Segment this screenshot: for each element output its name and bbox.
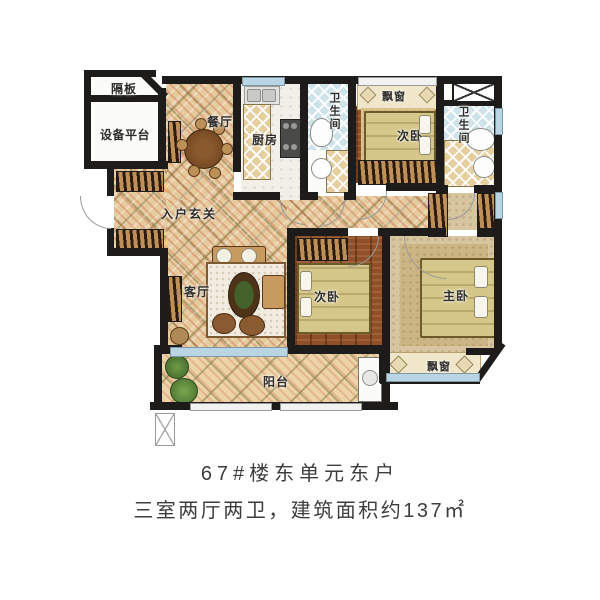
balcony-window-2 <box>280 403 362 411</box>
wall <box>107 168 114 196</box>
living-coffee-table <box>228 272 260 318</box>
label-living: 客厅 <box>184 283 210 300</box>
dining-chair <box>221 143 233 155</box>
dining-chair <box>188 165 200 177</box>
bath2-basin <box>473 156 495 178</box>
wall-bed1-bottom <box>386 183 440 191</box>
wall-bed2-bottom <box>287 345 390 354</box>
wall <box>158 88 166 168</box>
label-partition: 隔板 <box>111 80 137 97</box>
kitchen-sink-bowl <box>247 89 261 102</box>
washer-door <box>362 370 378 386</box>
balcony-slider-window <box>170 347 288 357</box>
label-bath2: 卫生间 <box>455 106 471 145</box>
label-master: 主卧 <box>443 287 469 304</box>
master-pillow <box>474 296 488 318</box>
entry-cabinet-bottom <box>116 229 164 250</box>
label-balcony: 阳台 <box>263 373 289 390</box>
living-plant-pot <box>170 327 189 345</box>
living-side-cabinet <box>168 276 182 322</box>
living-armchair <box>262 275 285 309</box>
balcony-plant <box>165 355 189 379</box>
living-ottoman <box>239 315 265 336</box>
wall-living-bed2 <box>287 228 295 352</box>
wall-corridor-a <box>287 228 348 236</box>
bath1-basin <box>311 158 332 179</box>
wall-balcony-left <box>154 345 162 410</box>
wall <box>379 352 384 383</box>
wall-bed1-right <box>436 76 444 191</box>
stove-burner <box>283 123 289 129</box>
caption-line1: 67#楼东单元东户 <box>0 457 600 486</box>
label-bath1: 卫生间 <box>326 92 342 131</box>
dining-table <box>184 129 224 169</box>
stove-burner <box>291 144 297 150</box>
dining-chair <box>195 118 207 130</box>
bedroom2-wardrobe <box>297 238 348 261</box>
wall-kitchen-left <box>233 84 241 172</box>
label-bay-window-bottom: 飘窗 <box>427 358 451 374</box>
wall-corridor-b <box>378 228 446 236</box>
master-pillow <box>474 266 488 288</box>
wall <box>84 70 91 168</box>
living-ottoman <box>212 313 236 334</box>
bedroom2-pillow <box>300 271 312 291</box>
label-equipment-platform: 设备平台 <box>100 126 150 143</box>
wall <box>436 185 448 193</box>
label-dining: 餐厅 <box>207 113 233 130</box>
stove-burner <box>291 123 297 129</box>
label-kitchen: 厨房 <box>252 131 278 148</box>
wall <box>466 348 496 355</box>
wall-bed2-master <box>382 236 390 352</box>
wall-bath1-right <box>348 84 356 196</box>
dining-chair <box>176 139 188 151</box>
wall <box>300 192 318 200</box>
wall-kitchen-bath <box>300 84 308 200</box>
stove-burner <box>283 144 289 150</box>
caption-line2: 三室两厅两卫，建筑面积约137㎡ <box>0 494 600 523</box>
wall-kitchen-bottom <box>233 192 280 200</box>
label-entry: 入户玄关 <box>161 205 217 222</box>
wall <box>84 161 168 169</box>
bay-window-top-glass <box>358 77 437 86</box>
right-window-1 <box>495 108 503 135</box>
bedroom1-wardrobe <box>358 160 437 185</box>
label-bay-window-top: 飘窗 <box>382 88 406 104</box>
wall-left-living <box>160 248 168 354</box>
label-bedroom1: 次卧 <box>397 127 423 144</box>
dining-chair <box>209 167 221 179</box>
bay-window-bottom-glass <box>386 373 480 382</box>
kitchen-sink-bowl <box>262 89 276 102</box>
balcony-window-1 <box>190 403 272 411</box>
wall <box>107 248 168 256</box>
right-window-2 <box>495 192 503 219</box>
kitchen-window <box>242 77 285 86</box>
entry-cabinet-top <box>116 171 164 192</box>
section-symbol <box>155 413 175 446</box>
bedroom2-pillow <box>300 297 312 317</box>
label-bedroom2: 次卧 <box>314 288 340 305</box>
flue-shaft <box>452 82 496 103</box>
balcony-plant <box>170 378 198 404</box>
wall-corridor-c <box>477 228 502 236</box>
floorplan-canvas: 隔板 设备平台 餐厅 厨房 卫生间 飘窗 次卧 卫生间 入户玄关 客厅 次卧 主… <box>0 0 600 600</box>
wall-top <box>162 76 502 84</box>
entry-door-arc <box>80 196 111 229</box>
